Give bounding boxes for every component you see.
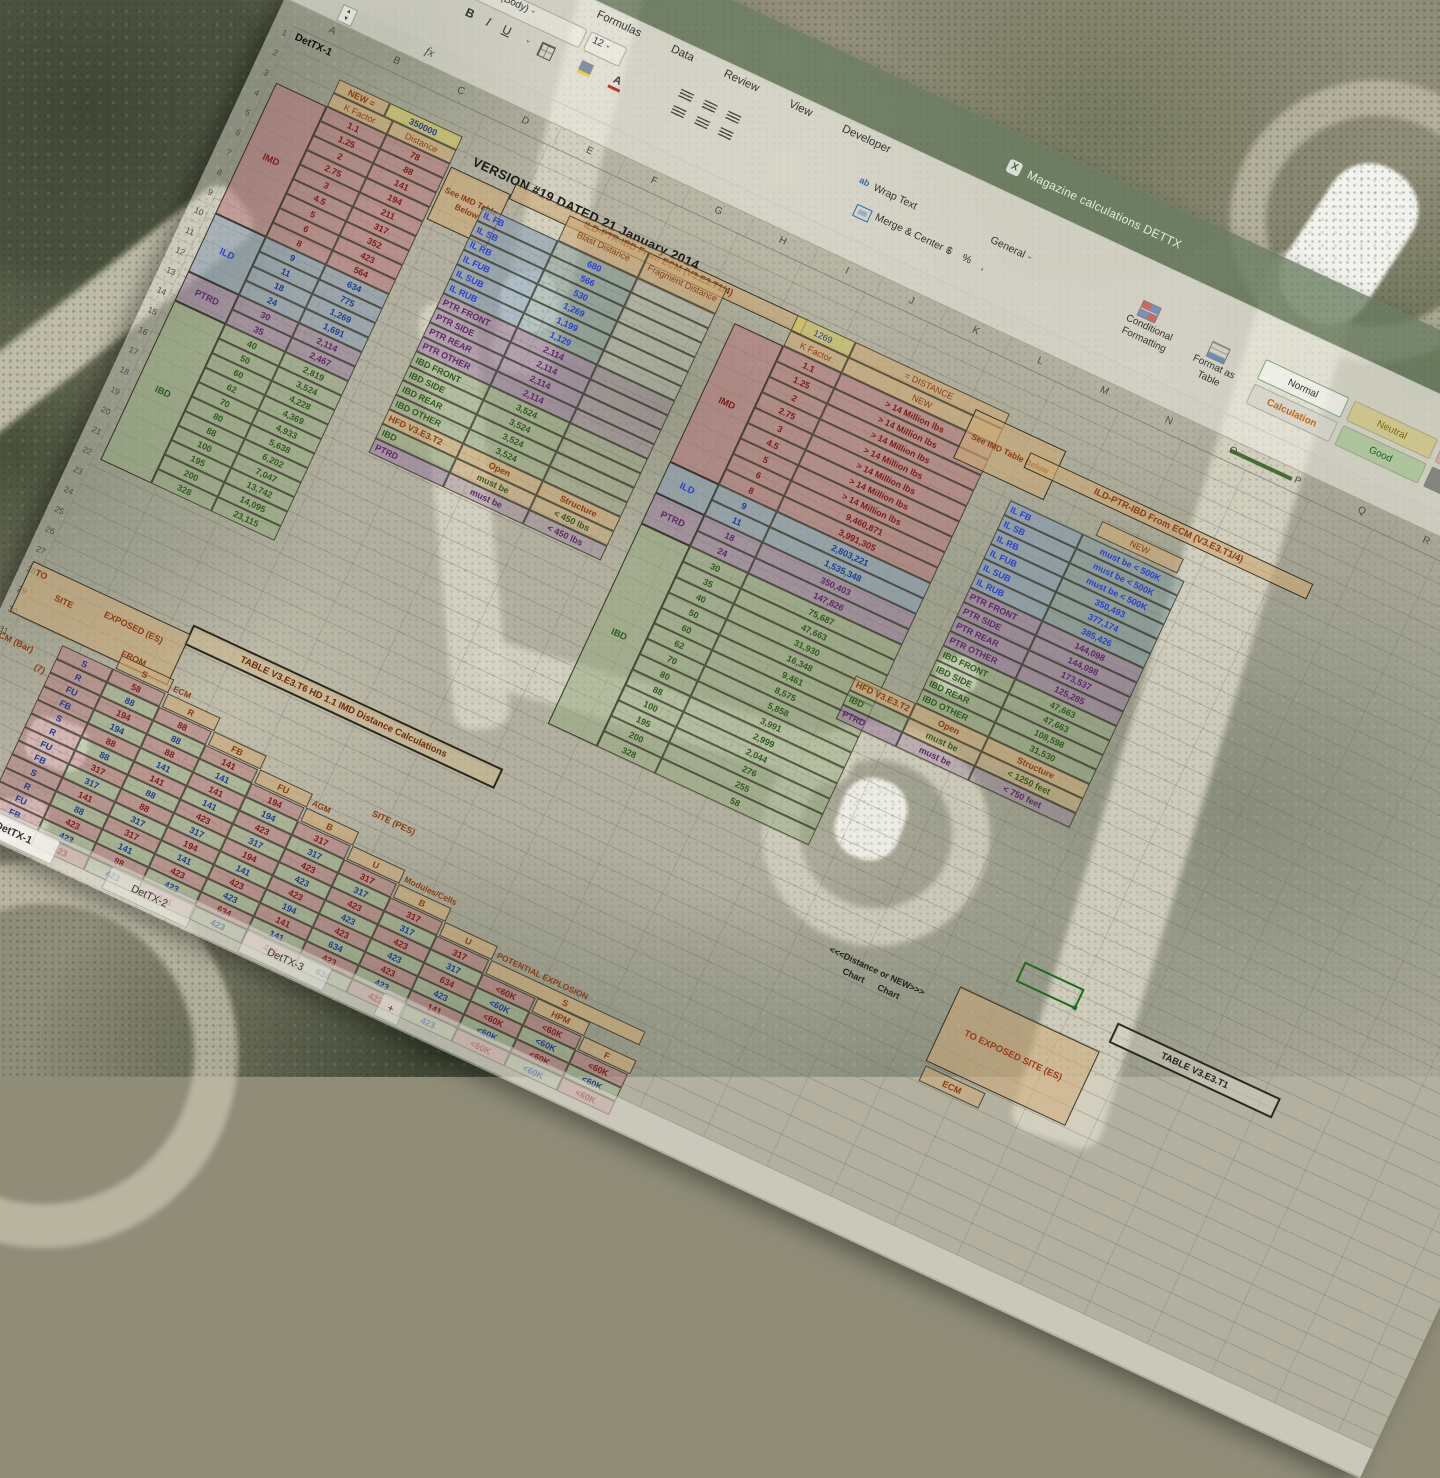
alignment-group [670, 89, 747, 145]
align-right-icon[interactable] [717, 127, 734, 142]
excel-app-icon [1005, 158, 1024, 177]
bold-button[interactable]: B [463, 5, 477, 22]
align-center-icon[interactable] [693, 116, 710, 131]
fill-color-button[interactable] [577, 60, 594, 77]
number-group: $ % , [944, 244, 987, 273]
chevron-down-icon [520, 32, 534, 49]
group-label: (7) [33, 662, 47, 676]
comma-button[interactable]: , [979, 261, 987, 273]
align-middle-icon[interactable] [701, 100, 718, 115]
percent-button[interactable]: % [960, 252, 974, 267]
align-bottom-icon[interactable] [725, 111, 742, 126]
borders-button[interactable] [536, 41, 556, 61]
wrap-text-icon [858, 175, 872, 189]
merge-center-icon [852, 204, 873, 223]
group-label: ECM (Bar) [0, 627, 35, 654]
sheet-tab[interactable]: + [373, 992, 408, 1027]
italic-button[interactable]: I [483, 15, 493, 30]
underline-button[interactable]: U [500, 22, 514, 39]
align-top-icon[interactable] [677, 89, 694, 104]
wrap-text-button[interactable]: Wrap Text [871, 182, 919, 213]
align-left-icon[interactable] [670, 105, 687, 120]
number-format-select[interactable]: General [988, 234, 1035, 264]
font-color-button[interactable] [607, 73, 626, 93]
font-size-select[interactable]: 12 [583, 31, 628, 67]
fx-icon [423, 44, 437, 61]
merge-center-button[interactable]: Merge & Center [873, 211, 953, 257]
